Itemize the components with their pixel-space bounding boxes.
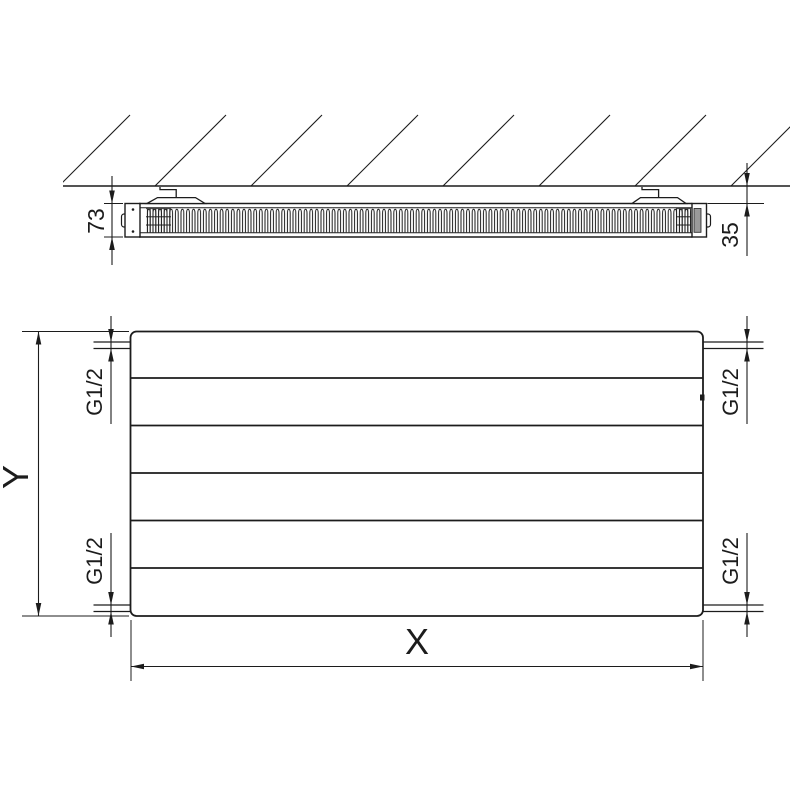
connection-dim-bottom-right: G1/2: [718, 533, 750, 637]
depth-dimension-label: 73: [83, 208, 109, 234]
dimension-wall-gap: 35: [708, 163, 765, 256]
connection-dim-top-left: G1/2: [82, 316, 114, 424]
hatch-line: [347, 115, 418, 186]
dimension-height: Y: [0, 332, 129, 617]
connection-label: G1/2: [718, 537, 743, 585]
front-view: G1/2 G1/2 G1/2 G1/2: [0, 316, 764, 681]
hatch-line: [443, 115, 514, 186]
arrowhead-up: [108, 612, 114, 625]
arrowhead-left: [131, 664, 144, 670]
arrowhead-up: [744, 349, 750, 362]
dimension-depth: 73: [83, 176, 123, 265]
arrowhead-up: [36, 332, 42, 345]
fin-end-block-right: [676, 208, 691, 232]
arrowhead-down: [109, 191, 115, 204]
arrowhead-down: [744, 329, 750, 342]
arrowhead-down: [108, 329, 114, 342]
arrowhead-up: [109, 237, 115, 250]
connection-label: G1/2: [718, 368, 743, 416]
hatch-line: [635, 115, 706, 186]
connection-dim-bottom-left: G1/2: [82, 533, 114, 637]
bracket-clip: [147, 198, 205, 204]
air-vent-mark: [700, 395, 705, 401]
connection-label: G1/2: [82, 368, 107, 416]
radiator-top-view: [122, 204, 711, 238]
arrowhead-up: [744, 612, 750, 625]
wall-bracket-right: [632, 187, 686, 204]
arrowhead-down: [744, 173, 750, 186]
drawing-svg: 73 35: [0, 0, 800, 800]
wall-hatching: [59, 115, 800, 186]
width-dimension-label: X: [405, 621, 429, 662]
cap-rivet-bottom: [132, 230, 135, 233]
arrowhead-up: [744, 204, 750, 217]
arrowhead-up: [108, 349, 114, 362]
connection-label: G1/2: [82, 537, 107, 585]
bracket-clip: [632, 198, 686, 204]
hatch-line: [155, 115, 226, 186]
arrowhead-right: [690, 664, 703, 670]
height-dimension-label: Y: [0, 465, 36, 489]
wall-bracket-left: [147, 187, 205, 204]
side-view: 73 35: [59, 115, 800, 265]
radiator-technical-drawing: 73 35: [0, 0, 800, 800]
wall-gap-dimension-label: 35: [717, 222, 743, 248]
gray-insert-bar: [694, 209, 701, 233]
fin-end-block-left: [146, 208, 171, 232]
connection-dim-top-right: G1/2: [718, 316, 750, 424]
dimension-width: X: [131, 620, 703, 681]
cap-rivet-top: [132, 208, 135, 211]
arrowhead-down: [36, 603, 42, 616]
convector-fins: [146, 208, 691, 232]
hatch-line: [251, 115, 322, 186]
hatch-line: [59, 115, 130, 186]
hatch-line: [731, 115, 800, 186]
arrowhead-down: [108, 592, 114, 605]
hatch-line: [539, 115, 610, 186]
arrowhead-down: [744, 592, 750, 605]
